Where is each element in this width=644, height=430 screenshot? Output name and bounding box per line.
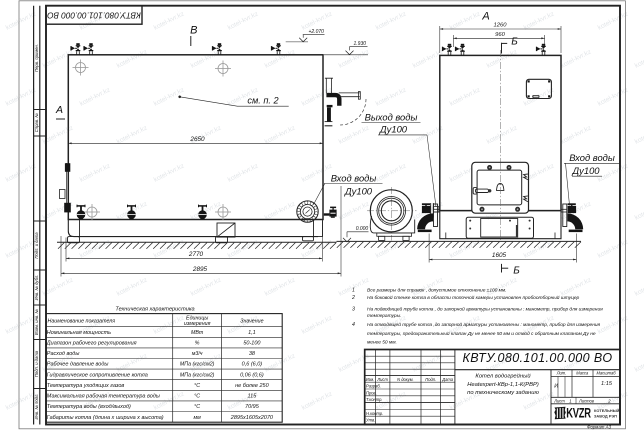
svg-text:МВт: МВт [191, 330, 204, 336]
svg-text:Утв.: Утв. [366, 418, 375, 423]
svg-text:°С: °С [194, 404, 200, 410]
svg-text:1.930: 1.930 [354, 41, 367, 47]
svg-text:Б: Б [513, 266, 520, 277]
svg-text:KVZR: KVZR [566, 405, 591, 421]
svg-text:А: А [55, 104, 63, 116]
svg-text:+2.070: +2.070 [309, 29, 325, 35]
svg-text:2650: 2650 [189, 136, 205, 143]
svg-text:Т.контр.: Т.контр. [366, 397, 383, 402]
svg-text:Подп. и дата: Подп. и дата [34, 232, 39, 259]
svg-text:см. п. 2: см. п. 2 [247, 96, 278, 106]
svg-text:Габариты котла (длина х ширина: Габариты котла (длина х ширина х высота) [47, 415, 164, 421]
svg-text:КВТУ.080.101.00.000 ВО: КВТУ.080.101.00.000 ВО [463, 351, 613, 365]
svg-text:°С: °С [194, 394, 200, 400]
svg-text:температуры, предохранительный: температуры, предохранительный клапан Ду… [367, 330, 596, 337]
svg-text:Ду100: Ду100 [379, 123, 408, 134]
svg-text:2895: 2895 [192, 266, 208, 273]
svg-text:Гидравлическое сопротивление к: Гидравлическое сопротивление котла [47, 372, 148, 378]
svg-text:1605: 1605 [492, 252, 507, 259]
svg-text:2770: 2770 [188, 251, 204, 258]
svg-text:Вход воды: Вход воды [331, 172, 377, 183]
svg-text:Ду100: Ду100 [571, 165, 600, 176]
svg-text:Лист: Лист [376, 377, 388, 382]
svg-text:измерения: измерения [184, 321, 211, 327]
svg-text:2: 2 [351, 295, 355, 301]
svg-text:115: 115 [248, 394, 258, 400]
svg-text:Листов: Листов [578, 398, 595, 403]
svg-text:Рабочее давление воды: Рабочее давление воды [47, 362, 109, 368]
svg-text:по техническому заданию: по техническому заданию [467, 390, 539, 396]
svg-text:не более 250: не более 250 [235, 383, 270, 389]
svg-text:Котел водогрейный: Котел водогрейный [475, 373, 531, 380]
svg-text:Температура уходящих газов: Температура уходящих газов [47, 383, 125, 389]
svg-text:Масштаб: Масштаб [596, 371, 616, 376]
svg-text:Значение: Значение [240, 318, 263, 324]
svg-text:Диапазон рабочего регулировани: Диапазон рабочего регулирования [46, 341, 137, 347]
svg-text:Расход воды: Расход воды [47, 351, 80, 357]
svg-text:Номинальная мощность: Номинальная мощность [47, 330, 111, 336]
svg-text:Heatexpert-КВр-1,1-К(РВР): Heatexpert-КВр-1,1-К(РВР) [467, 382, 539, 388]
svg-text:Все размеры для справок , до: Все размеры для справок , допустимое отк… [367, 287, 507, 293]
svg-text:Максимальная рабочая температу: Максимальная рабочая температура воды [47, 394, 160, 400]
svg-text:Ду100: Ду100 [344, 185, 373, 196]
svg-text:температуры.: температуры. [367, 314, 401, 319]
svg-text:Взам. инв. №: Взам. инв. № [34, 309, 39, 335]
svg-text:Инв. № подл.: Инв. № подл. [34, 394, 39, 420]
svg-text:Дата: Дата [441, 377, 454, 382]
svg-text:Перв. примен.: Перв. примен. [34, 44, 39, 72]
svg-text:Подп.: Подп. [425, 377, 436, 382]
svg-text:КВТУ.080.101.00.000 ВО: КВТУ.080.101.00.000 ВО [47, 11, 141, 21]
svg-text:На боковой стенке котла в обла: На боковой стенке котла в области топочн… [367, 294, 579, 301]
svg-text:МПа (кгс/см2): МПа (кгс/см2) [180, 362, 215, 368]
svg-text:Вход воды: Вход воды [569, 152, 615, 163]
svg-text:50-100: 50-100 [243, 341, 261, 347]
svg-text:МПа (кгс/см2): МПа (кгс/см2) [180, 372, 215, 378]
svg-text:Справ. №: Справ. № [34, 113, 39, 132]
svg-text:Изм.: Изм. [366, 377, 375, 382]
svg-text:%: % [195, 341, 200, 347]
svg-text:Температура воды (вход/выход): Температура воды (вход/выход) [47, 404, 131, 410]
svg-text:Инв. № дубл.: Инв. № дубл. [34, 275, 39, 301]
svg-text:4: 4 [352, 322, 355, 328]
svg-text:Масса: Масса [576, 371, 589, 376]
svg-text:1: 1 [352, 287, 355, 293]
svg-text:На подводящей трубе котла ,: На подводящей трубе котла , до запорной … [367, 306, 603, 313]
svg-text:Лист: Лист [553, 398, 565, 403]
svg-text:Б: Б [511, 36, 518, 47]
svg-text:960: 960 [495, 32, 505, 38]
svg-text:Наименование показателя: Наименование показателя [48, 318, 116, 324]
svg-text:0,06 (0,6): 0,06 (0,6) [240, 372, 264, 378]
svg-text:Подп. и дата: Подп. и дата [34, 350, 39, 377]
svg-text:1,1: 1,1 [248, 330, 256, 336]
svg-text:На отводящей трубе котла ,до з: На отводящей трубе котла ,до запорной ар… [367, 321, 601, 328]
svg-text:3: 3 [352, 307, 355, 313]
svg-text:Выход воды: Выход воды [365, 111, 418, 122]
svg-text:И: И [554, 384, 558, 390]
svg-text:мм: мм [194, 415, 202, 421]
svg-text:1:15: 1:15 [601, 381, 613, 387]
svg-text:Лит.: Лит. [556, 371, 567, 376]
svg-text:N докум.: N докум. [397, 377, 414, 382]
svg-text:А: А [481, 11, 489, 23]
svg-text:2895х1605х2070: 2895х1605х2070 [230, 415, 274, 421]
svg-text:Разраб.: Разраб. [366, 384, 381, 389]
svg-text:Н.контр.: Н.контр. [366, 411, 383, 416]
svg-text:Пров.: Пров. [366, 390, 377, 395]
svg-text:70/95: 70/95 [245, 404, 260, 410]
svg-text:38: 38 [249, 351, 256, 357]
svg-text:0.000: 0.000 [356, 226, 369, 232]
svg-text:Формат А3: Формат А3 [587, 424, 612, 429]
svg-text:Техническая характеристика: Техническая характеристика [115, 307, 194, 313]
svg-text:1260: 1260 [494, 23, 508, 29]
svg-text:ЗАВОД РЭП: ЗАВОД РЭП [594, 413, 617, 418]
svg-text:В: В [190, 24, 197, 36]
svg-text:0,6 (6,0): 0,6 (6,0) [242, 362, 263, 368]
svg-text:°С: °С [194, 383, 200, 389]
svg-text:менее 50 мм.: менее 50 мм. [367, 340, 397, 346]
svg-text:м3/ч: м3/ч [192, 351, 203, 357]
